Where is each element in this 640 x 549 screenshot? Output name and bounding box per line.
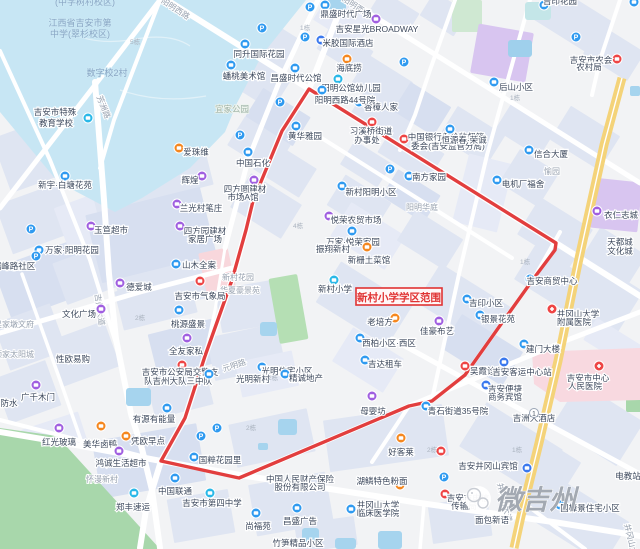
svg-text:P: P	[388, 167, 393, 174]
svg-text:郑丰速运: 郑丰速运	[116, 502, 151, 512]
svg-text:建门大楼: 建门大楼	[526, 344, 561, 354]
svg-text:P: P	[402, 60, 407, 67]
svg-text:1: 1	[532, 411, 536, 418]
svg-text:佳豪布艺: 佳豪布艺	[420, 326, 454, 336]
svg-text:P: P	[308, 5, 313, 12]
svg-text:振翔新村: 振翔新村	[316, 244, 351, 254]
svg-text:临床医学院: 临床医学院	[357, 508, 400, 518]
svg-text:鼎盛时代广场: 鼎盛时代广场	[320, 9, 371, 19]
svg-text:红光玻璃: 红光玻璃	[42, 437, 77, 447]
svg-text:市场A馆: 市场A馆	[227, 192, 258, 202]
svg-text:尚福苑: 尚福苑	[245, 521, 271, 531]
svg-text:吉达租车: 吉达租车	[368, 359, 402, 369]
svg-text:新村小学学区范围: 新村小学学区范围	[357, 291, 441, 304]
svg-text:吉安井冈山宾馆: 吉安井冈山宾馆	[458, 461, 518, 471]
svg-text:桃源盛景: 桃源盛景	[171, 319, 205, 329]
svg-text:2栋: 2栋	[427, 445, 438, 454]
svg-text:面包新语: 面包新语	[475, 515, 510, 525]
svg-text:微吉州: 微吉州	[495, 485, 580, 515]
svg-text:P: P	[29, 227, 34, 234]
svg-text:悦荣农贸市场: 悦荣农贸市场	[330, 215, 381, 225]
svg-text:电教站: 电教站	[615, 471, 640, 481]
svg-text:吉印小区: 吉印小区	[469, 298, 504, 308]
svg-text:防水: 防水	[0, 398, 18, 408]
svg-text:4栋: 4栋	[293, 221, 304, 230]
svg-text:吴家墩文府: 吴家墩文府	[0, 319, 34, 329]
svg-text:2栋: 2栋	[268, 373, 279, 382]
svg-text:吉安市气象局: 吉安市气象局	[174, 291, 225, 301]
svg-text:阳明西路44号院: 阳明西路44号院	[315, 95, 376, 105]
svg-text:华夏豪景苑: 华夏豪景苑	[220, 285, 260, 295]
svg-text:文化城: 文化城	[607, 246, 633, 256]
svg-text:2栋: 2栋	[246, 423, 257, 432]
svg-text:阳明华庭: 阳明华庭	[406, 202, 438, 212]
svg-text:老培方: 老培方	[367, 317, 393, 327]
svg-text:银景花苑: 银景花苑	[481, 314, 516, 324]
svg-text:同升国际花园: 同升国际花园	[233, 49, 284, 59]
svg-text:恒源春·荣诚: 恒源春·荣诚	[441, 135, 487, 145]
svg-text:股份有限公司: 股份有限公司	[274, 482, 325, 492]
svg-text:昌盛广告: 昌盛广告	[283, 516, 317, 526]
svg-text:1栋: 1栋	[510, 93, 521, 102]
svg-text:怀漫新村: 怀漫新村	[86, 474, 118, 484]
svg-text:新村阳明小区: 新村阳明小区	[345, 187, 397, 197]
svg-text:P: P	[278, 100, 283, 107]
svg-text:阳明公馆幼儿园: 阳明公馆幼儿园	[321, 83, 381, 93]
svg-text:吉安星光BROADWAY: 吉安星光BROADWAY	[336, 24, 419, 34]
svg-text:鸿诚生活超市: 鸿诚生活超市	[95, 458, 147, 468]
svg-text:P: P	[574, 35, 579, 42]
svg-text:商务宾馆: 商务宾馆	[488, 392, 522, 402]
svg-text:爱珠维: 爱珠维	[183, 147, 209, 157]
svg-text:母婴坊: 母婴坊	[360, 406, 386, 416]
svg-text:南方家园: 南方家园	[412, 172, 446, 182]
svg-text:1栋: 1栋	[512, 445, 523, 454]
svg-text:后山小区: 后山小区	[499, 82, 534, 92]
svg-text:昌盛时代公馆: 昌盛时代公馆	[270, 73, 321, 83]
svg-text:中学(翠杉校区): 中学(翠杉校区)	[50, 28, 110, 39]
svg-text:凭欧早点: 凭欧早点	[131, 436, 166, 446]
svg-text:吉安市第四中学: 吉安市第四中学	[182, 498, 242, 508]
svg-text:性欧易购: 性欧易购	[56, 354, 90, 364]
svg-text:吉安客运中心站: 吉安客运中心站	[492, 367, 552, 377]
svg-text:中国联通: 中国联通	[158, 486, 193, 496]
svg-text:海底捞: 海底捞	[336, 63, 362, 73]
svg-text:(中学树村校区): (中学树村校区)	[55, 0, 115, 7]
svg-text:顺家太阳城: 顺家太阳城	[0, 349, 34, 359]
svg-text:黄华雅园: 黄华雅园	[288, 131, 322, 141]
svg-text:广千木门: 广千木门	[21, 392, 55, 402]
svg-text:吉安市特殊: 吉安市特殊	[34, 107, 77, 117]
svg-text:办事处: 办事处	[354, 135, 380, 145]
svg-text:光明新村: 光明新村	[236, 374, 271, 384]
svg-text:文化广场: 文化广场	[62, 309, 96, 319]
svg-text:P: P	[238, 133, 243, 140]
svg-text:新栅土菜馆: 新栅土菜馆	[348, 255, 391, 265]
svg-text:信合大厦: 信合大厦	[534, 149, 569, 159]
svg-text:西柏小区·西区: 西柏小区·西区	[362, 338, 416, 348]
svg-text:吉印花园: 吉印花园	[543, 0, 577, 6]
svg-text:有源有能量: 有源有能量	[133, 414, 176, 424]
svg-text:数字校2村: 数字校2村	[86, 67, 127, 78]
svg-text:附属医院: 附属医院	[557, 317, 592, 327]
svg-text:山木全案: 山木全案	[182, 260, 217, 270]
svg-text:新村花园: 新村花园	[222, 272, 254, 282]
svg-text:玉笪超市: 玉笪超市	[94, 225, 129, 235]
svg-text:中国石化: 中国石化	[236, 158, 271, 168]
svg-text:队吉州大队三中队: 队吉州大队三中队	[144, 376, 213, 386]
svg-text:宜家公园: 宜家公园	[215, 104, 249, 114]
svg-text:全友家私: 全友家私	[169, 346, 204, 356]
svg-text:辉煌: 辉煌	[181, 175, 199, 185]
svg-text:5栋: 5栋	[130, 37, 141, 46]
svg-text:万家·阳明花园: 万家·阳明花园	[45, 245, 99, 255]
svg-text:吉安商贸中心: 吉安商贸中心	[526, 276, 578, 286]
svg-text:P: P	[215, 426, 220, 433]
svg-text:P: P	[199, 434, 204, 441]
svg-text:家居广场: 家居广场	[188, 234, 222, 244]
svg-text:精诚地产: 精诚地产	[289, 373, 323, 383]
svg-text:德爱城: 德爱城	[126, 282, 152, 292]
svg-text:好客莱: 好客莱	[388, 447, 414, 457]
svg-text:新宇·白塘花苑: 新宇·白塘花苑	[38, 180, 92, 190]
svg-text:青石街道35号院: 青石街道35号院	[428, 406, 489, 416]
svg-text:美华卤鸭: 美华卤鸭	[83, 439, 117, 449]
svg-text:P: P	[260, 26, 265, 33]
svg-text:国粹花园里: 国粹花园里	[199, 455, 242, 465]
svg-text:2栋: 2栋	[135, 313, 146, 322]
svg-text:湖鳞特色粉面: 湖鳞特色粉面	[356, 476, 408, 486]
svg-text:电机厂福舍: 电机厂福舍	[502, 179, 545, 189]
svg-text:新村小学: 新村小学	[318, 284, 353, 294]
svg-text:农村局: 农村局	[576, 62, 602, 72]
svg-text:衣仁志城: 衣仁志城	[604, 210, 639, 220]
svg-text:蟠桃美术馆: 蟠桃美术馆	[223, 71, 266, 81]
svg-text:兰光村笔庄: 兰光村笔庄	[180, 203, 223, 213]
svg-text:1栋: 1栋	[520, 257, 531, 266]
svg-text:1栋: 1栋	[300, 23, 311, 32]
svg-text:教育学校: 教育学校	[39, 118, 74, 128]
svg-text:P: P	[442, 475, 447, 482]
svg-text:米胶国际酒店: 米胶国际酒店	[322, 38, 374, 48]
svg-text:瑞峰路社区: 瑞峰路社区	[0, 261, 36, 271]
svg-text:人民医院: 人民医院	[568, 381, 603, 391]
svg-text:江西省吉安市第: 江西省吉安市第	[48, 17, 111, 28]
svg-text:P: P	[303, 35, 308, 42]
svg-text:竹笋精品小区: 竹笋精品小区	[272, 538, 324, 548]
svg-text:P: P	[34, 254, 39, 261]
svg-text:愉园: 愉园	[544, 166, 560, 176]
